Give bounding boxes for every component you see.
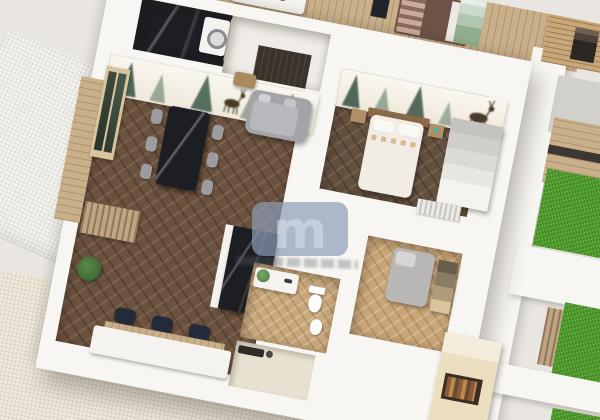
watermark-logo-shape: m bbox=[252, 202, 348, 256]
nightstand bbox=[350, 108, 367, 124]
floorplan-render-scene: m bbox=[0, 0, 600, 420]
watermark-logo: m bbox=[252, 202, 348, 256]
watermark-letter: m bbox=[273, 202, 327, 256]
